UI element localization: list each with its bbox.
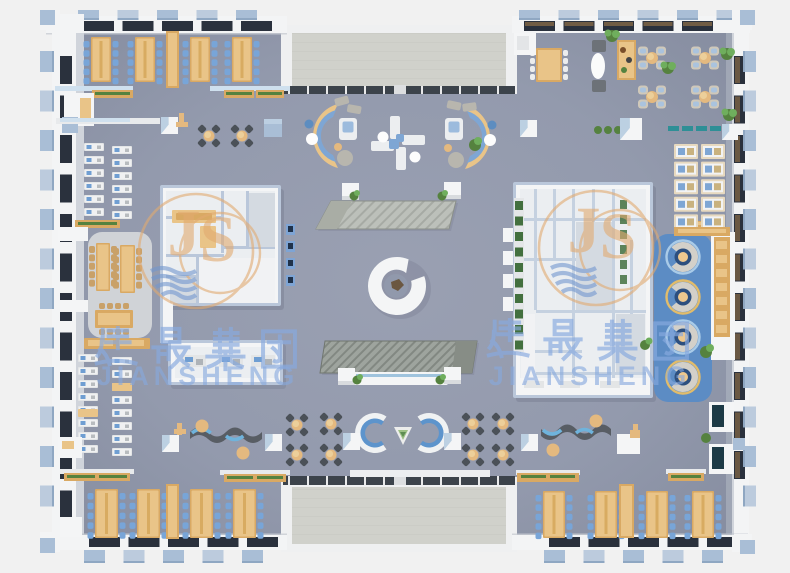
svg-text:J: J — [168, 197, 201, 270]
svg-text:J: J — [568, 194, 601, 267]
svg-text:JIANSHENG: JIANSHENG — [97, 361, 300, 391]
svg-text:S: S — [600, 200, 637, 273]
svg-text:S: S — [200, 203, 237, 276]
svg-text:JIANSHENG: JIANSHENG — [489, 361, 692, 391]
